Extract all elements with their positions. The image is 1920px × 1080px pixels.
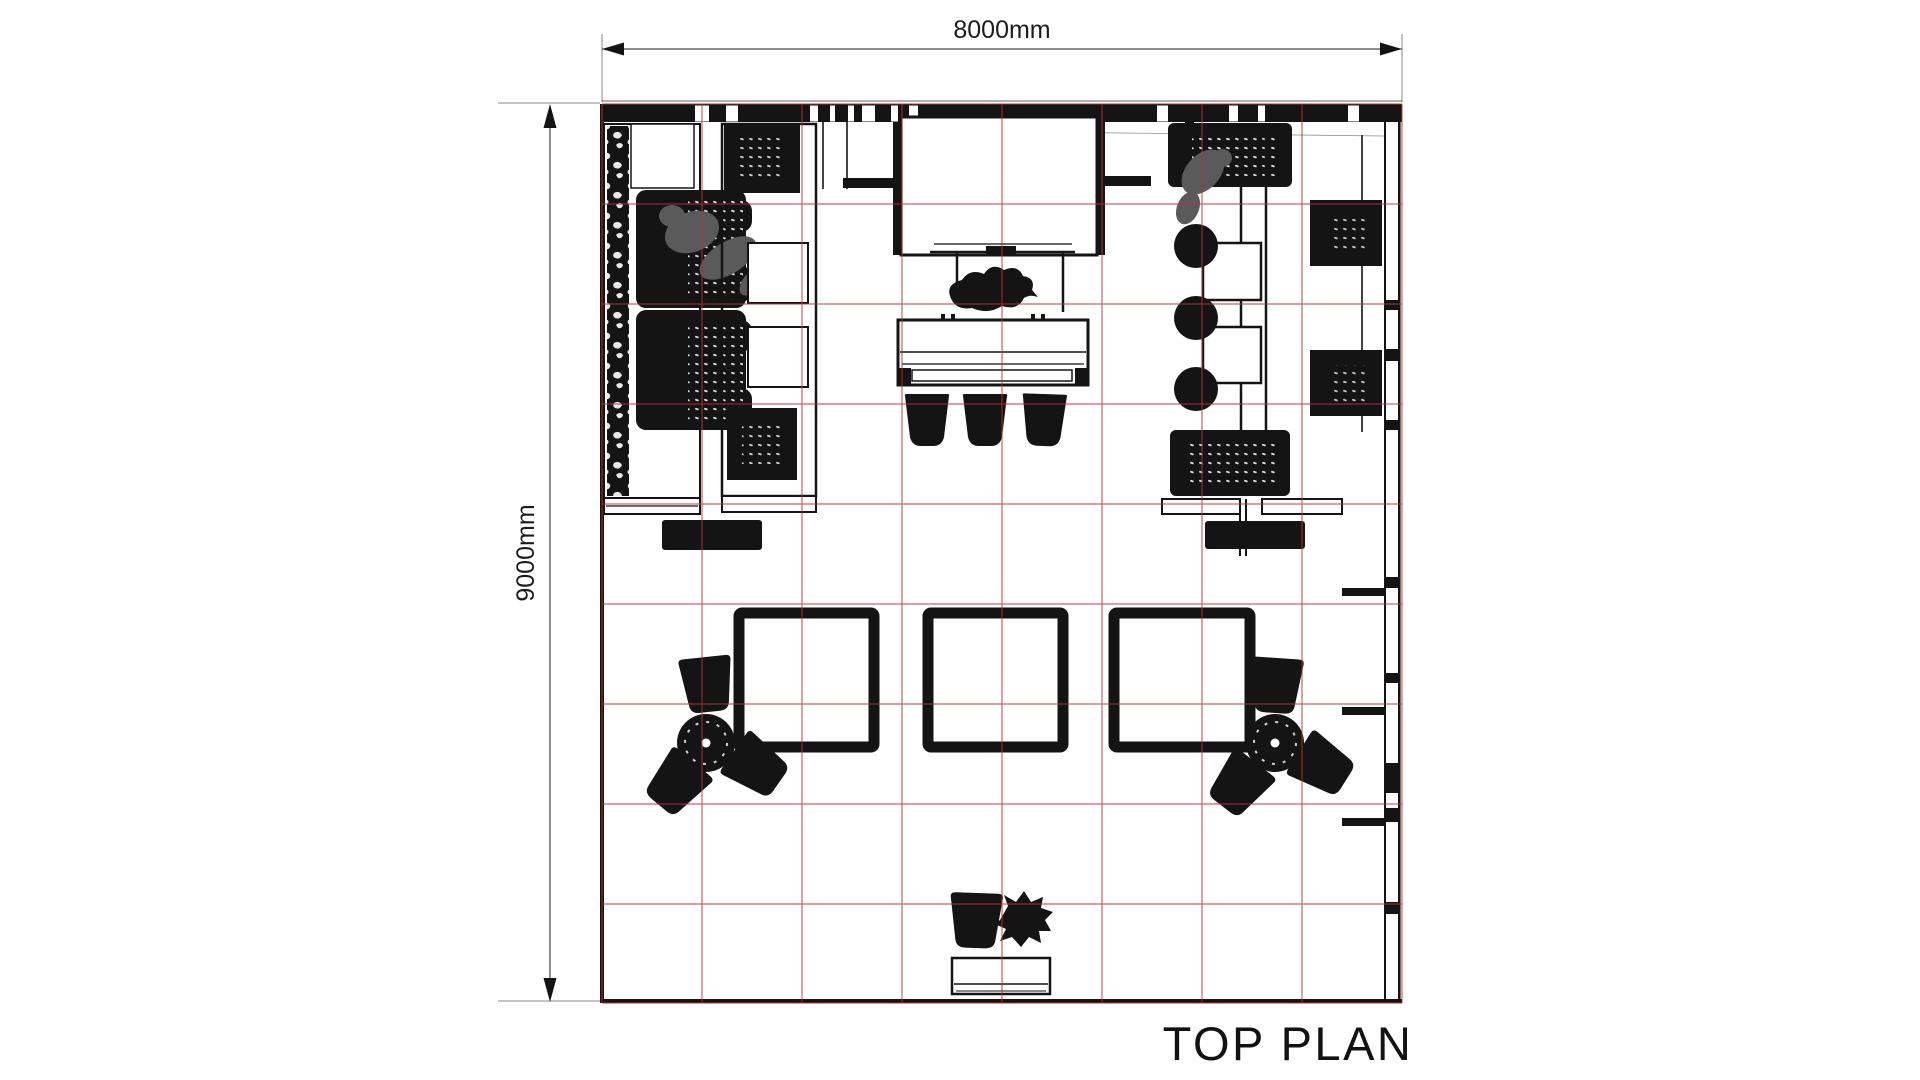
seating-cluster-left bbox=[639, 654, 794, 821]
wall-ticks bbox=[1342, 588, 1386, 826]
reception-counter bbox=[898, 314, 1088, 385]
floor-plan-canvas: 8000mm 9000mm bbox=[0, 0, 1920, 1080]
wall-joint-blocks bbox=[1386, 300, 1398, 914]
display-square-2 bbox=[928, 613, 1063, 747]
side-table-dark bbox=[1310, 350, 1382, 416]
desk bbox=[952, 958, 1050, 994]
cabinet bbox=[631, 124, 694, 188]
bar-stool bbox=[1021, 393, 1067, 447]
arrow-left-icon bbox=[602, 43, 624, 56]
dimension-width: 8000mm bbox=[602, 16, 1402, 102]
right-side-tables bbox=[1310, 200, 1382, 416]
seating-cluster-right bbox=[1202, 656, 1360, 822]
side-shelf bbox=[1105, 176, 1151, 186]
bar-stool bbox=[963, 394, 1008, 446]
unit-end-counter bbox=[1162, 499, 1240, 514]
dimension-height: 9000mm bbox=[498, 103, 600, 1002]
display-square-3 bbox=[1114, 613, 1250, 747]
bottom-desk-group bbox=[949, 891, 1053, 994]
person-figure-bottom bbox=[995, 891, 1053, 947]
lounge-chair bbox=[678, 654, 736, 714]
alcove-panels bbox=[823, 122, 896, 189]
side-table-dark bbox=[1310, 200, 1382, 266]
bar-stool bbox=[905, 394, 950, 446]
display-square-1 bbox=[739, 613, 874, 747]
screen-panel bbox=[901, 117, 1097, 255]
sofa-bottom-right bbox=[1170, 430, 1290, 496]
round-stool bbox=[1174, 224, 1218, 268]
display-squares bbox=[739, 613, 1250, 747]
reception-screen-area bbox=[893, 117, 1151, 447]
page: { "title": { "text": "TOP PLAN" }, "dime… bbox=[0, 0, 1920, 1080]
plan-title: TOP PLAN bbox=[1163, 1017, 1414, 1070]
round-coffee-table bbox=[677, 714, 735, 772]
round-stool bbox=[1174, 296, 1218, 340]
height-dimension-label: 9000mm bbox=[512, 504, 540, 601]
desk-chair bbox=[949, 892, 1003, 949]
lounge-chair bbox=[1248, 656, 1304, 715]
bench-left bbox=[662, 520, 762, 550]
arrow-down-icon bbox=[544, 978, 557, 1002]
display-cube-dark bbox=[724, 124, 800, 193]
texture-overlay bbox=[607, 126, 629, 496]
round-coffee-table bbox=[1246, 714, 1304, 772]
right-lounge-column bbox=[1162, 123, 1342, 556]
display-cube-dark bbox=[727, 408, 797, 480]
bench-right bbox=[1205, 521, 1305, 549]
display-cube-white bbox=[748, 243, 808, 303]
arrow-up-icon bbox=[544, 104, 557, 128]
display-cube-white bbox=[748, 327, 808, 387]
arrow-right-icon bbox=[1380, 43, 1402, 56]
width-dimension-label: 8000mm bbox=[953, 16, 1050, 44]
